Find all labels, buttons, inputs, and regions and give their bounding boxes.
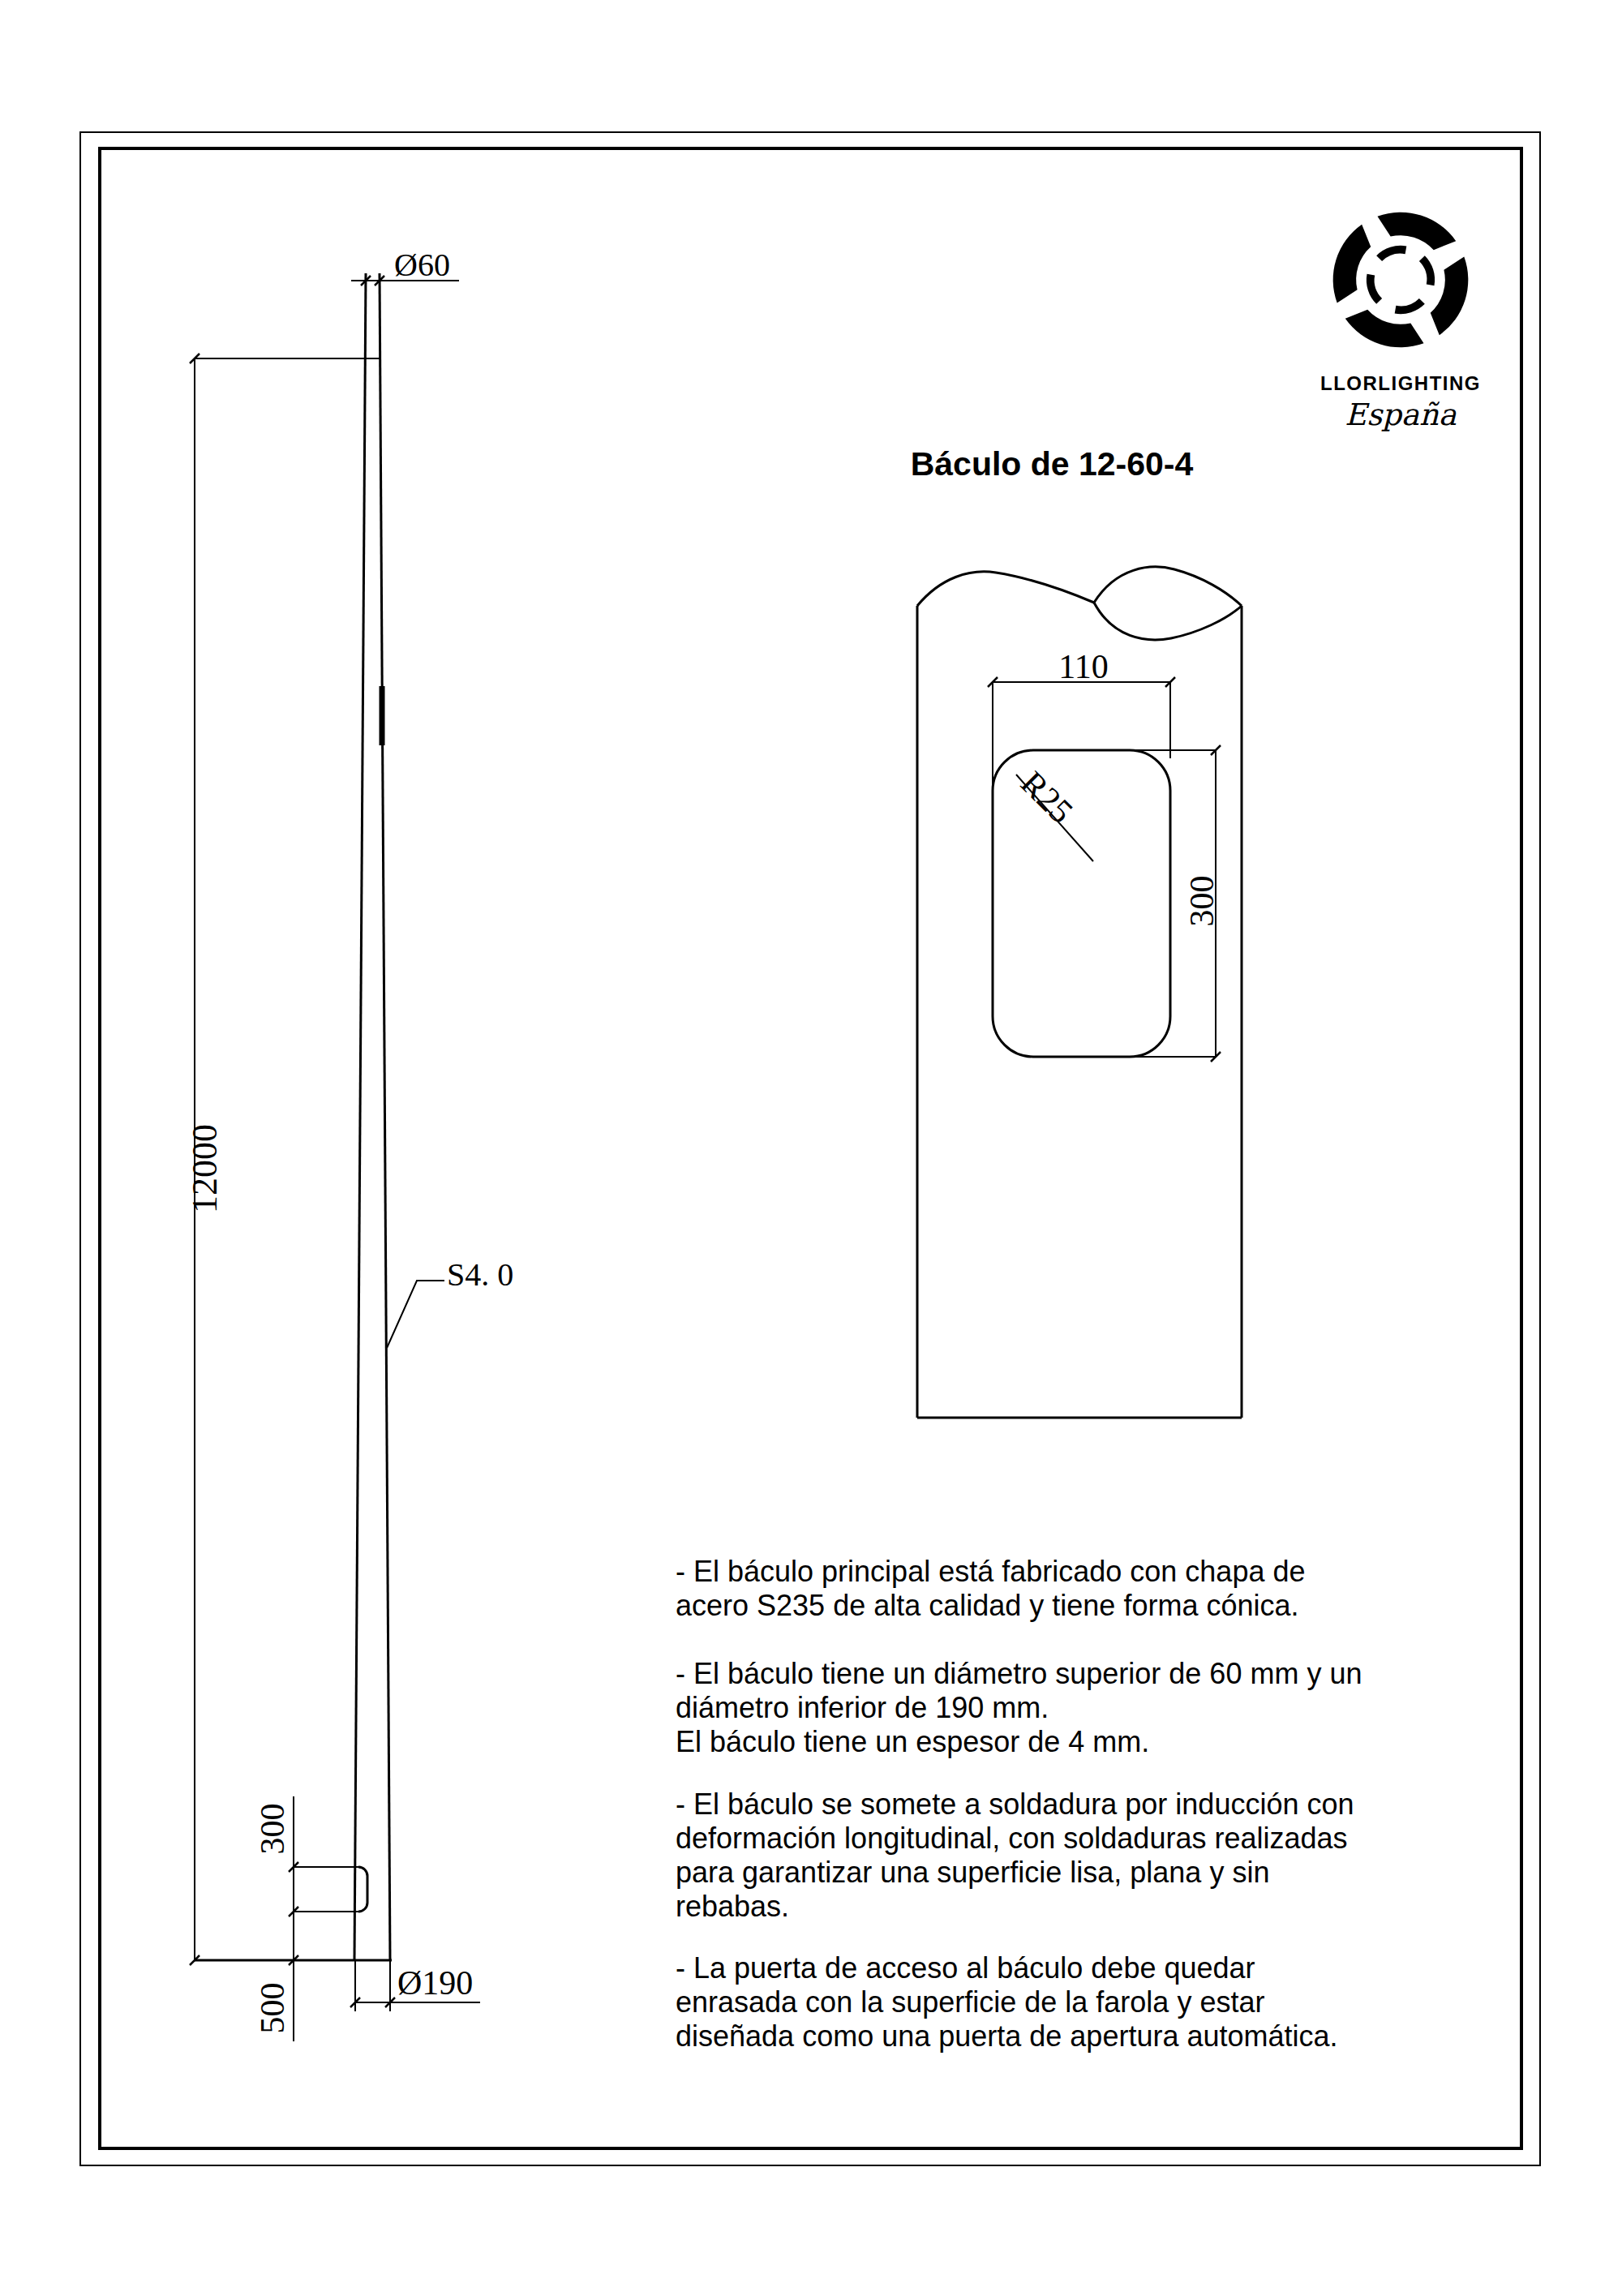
- break-line: [917, 567, 1242, 606]
- logo-company-name: LLORLIGHTING: [1320, 372, 1481, 395]
- dim-door-height-label: 300: [253, 1804, 292, 1855]
- logo-country: España: [1345, 397, 1457, 432]
- thickness-leader: [387, 1281, 444, 1348]
- dim-base-diameter-label: Ø190: [397, 1963, 473, 2002]
- drawing-sheet: LLORLIGHTING España Báculo de 12-60-4 Ø6…: [0, 0, 1622, 2296]
- left-view-dimensions: [195, 281, 480, 2041]
- note-material: - El báculo principal está fabricado con…: [676, 1555, 1454, 1623]
- dim-door-to-base-label: 500: [253, 1983, 292, 2034]
- drawing-title: Báculo de 12-60-4: [911, 445, 1194, 483]
- llorlighting-logo-icon: [1318, 200, 1483, 359]
- dim-detail-door-height-label: 300: [1182, 876, 1221, 927]
- door-detail-view: [917, 567, 1242, 1418]
- thickness-callout-label: S4. 0: [447, 1255, 513, 1294]
- break-line-lens: [1094, 603, 1242, 640]
- door-side-profile: [358, 1867, 367, 1912]
- note-welding: - El báculo se somete a soldadura por in…: [676, 1787, 1454, 1924]
- dim-total-height-label: 12000: [184, 1124, 225, 1213]
- dim-top-diameter-label: Ø60: [394, 246, 450, 284]
- detail-view-dimensions: [993, 682, 1216, 1057]
- dim-door-width-label: 110: [1058, 647, 1108, 686]
- note-diameters: - El báculo tiene un diámetro superior d…: [676, 1657, 1454, 1759]
- pole-side-view: [195, 273, 392, 1960]
- note-door: - La puerta de acceso al báculo debe que…: [676, 1951, 1454, 2054]
